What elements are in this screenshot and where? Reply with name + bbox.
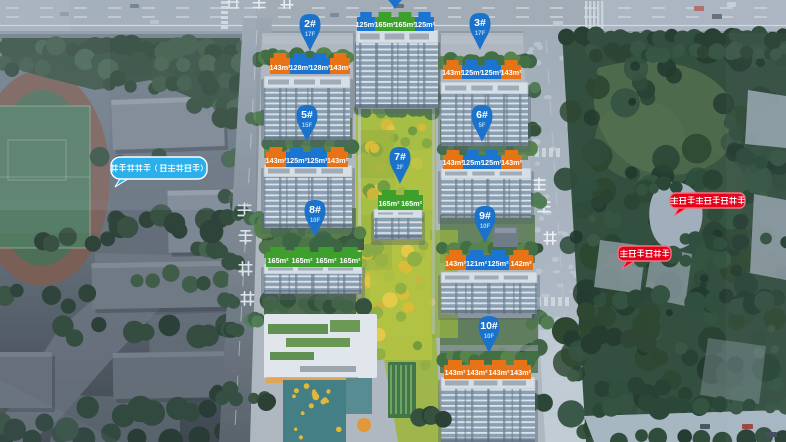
svg-text:125m²: 125m² (286, 156, 308, 165)
svg-text:128m²: 128m² (289, 63, 311, 72)
svg-text:128m²: 128m² (309, 63, 331, 72)
svg-text:125m²: 125m² (461, 68, 483, 77)
svg-text:2#: 2# (304, 18, 316, 30)
svg-text:8#: 8# (309, 204, 321, 216)
svg-text:15F: 15F (302, 123, 313, 129)
svg-text:6#: 6# (476, 109, 488, 121)
svg-text:125m²: 125m² (487, 259, 509, 268)
svg-text:165m²: 165m² (339, 256, 361, 265)
svg-text:17F: 17F (475, 31, 486, 37)
svg-text:125m²: 125m² (480, 68, 502, 77)
svg-text:5F: 5F (478, 123, 485, 129)
svg-text:17F: 17F (305, 32, 316, 38)
svg-text:125m²: 125m² (306, 156, 328, 165)
svg-text:143m²: 143m² (445, 259, 467, 268)
svg-text:165m²: 165m² (374, 20, 396, 29)
svg-text:143m²: 143m² (444, 368, 466, 377)
svg-text:165m²: 165m² (378, 199, 400, 208)
svg-text:143m²: 143m² (488, 368, 510, 377)
svg-text:165m²: 165m² (267, 256, 289, 265)
svg-text:9#: 9# (479, 210, 491, 222)
svg-text:143m²: 143m² (329, 63, 351, 72)
svg-text:143m²: 143m² (510, 368, 532, 377)
svg-text:10#: 10# (480, 320, 498, 332)
svg-text:143m²: 143m² (269, 63, 291, 72)
svg-text:10F: 10F (480, 224, 491, 230)
svg-text:3#: 3# (474, 17, 486, 29)
svg-text:125m²: 125m² (414, 20, 436, 29)
svg-text:143m²: 143m² (442, 158, 464, 167)
svg-text:165m²: 165m² (315, 256, 337, 265)
svg-text:142m²: 142m² (510, 259, 532, 268)
svg-text:121m²: 121m² (466, 259, 488, 268)
svg-text:143m²: 143m² (466, 368, 488, 377)
svg-text:10F: 10F (310, 218, 321, 224)
svg-text:143m²: 143m² (501, 158, 523, 167)
svg-text:165m²: 165m² (291, 256, 313, 265)
svg-text:143m²: 143m² (500, 68, 522, 77)
svg-text:165m²: 165m² (401, 199, 423, 208)
svg-text:125m²: 125m² (481, 158, 503, 167)
svg-text:5#: 5# (301, 109, 313, 121)
svg-text:165m²: 165m² (394, 20, 416, 29)
svg-text:10F: 10F (484, 334, 495, 340)
svg-text:2F: 2F (396, 165, 403, 171)
svg-text:143m²: 143m² (265, 156, 287, 165)
svg-text:7#: 7# (394, 151, 406, 163)
svg-text:143m²: 143m² (327, 156, 349, 165)
